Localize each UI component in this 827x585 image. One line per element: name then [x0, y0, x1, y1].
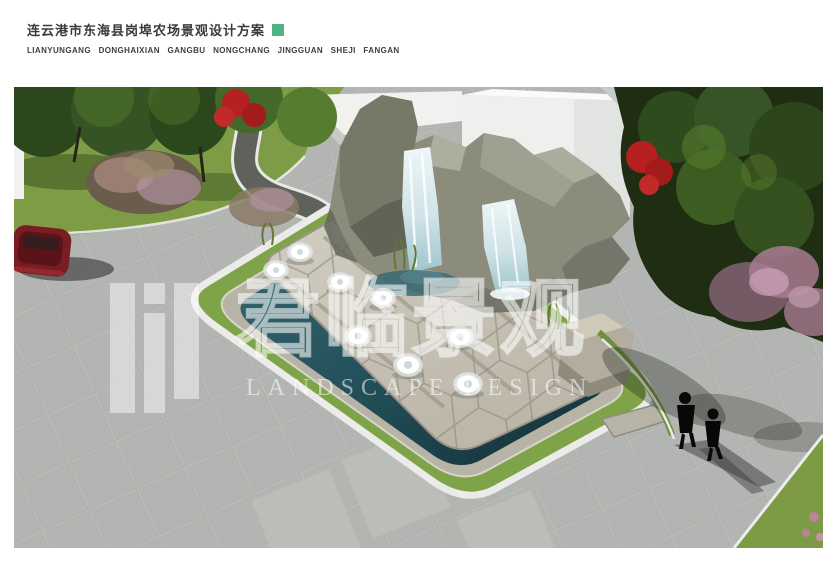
fountain-jet: [369, 288, 397, 311]
fountain-jet: [326, 272, 354, 295]
rendering-image: 君临景观 LANDSCAPE DESIGN: [14, 87, 823, 548]
sheet-header: 连云港市东海县岗埠农场景观设计方案 LIANYUNGANG DONGHAIXIA…: [27, 20, 400, 55]
fountain-jet: [286, 242, 314, 265]
fountain-jet: [262, 260, 290, 283]
design-sheet: 连云港市东海县岗埠农场景观设计方案 LIANYUNGANG DONGHAIXIA…: [0, 0, 827, 585]
page-subtitle-pinyin: LIANYUNGANG DONGHAIXIAN GANGBU NONGCHANG…: [27, 46, 400, 55]
rendering-scene: [14, 87, 823, 548]
accent-square-icon: [272, 24, 284, 36]
page-title: 连云港市东海县岗埠农场景观设计方案: [27, 20, 265, 39]
